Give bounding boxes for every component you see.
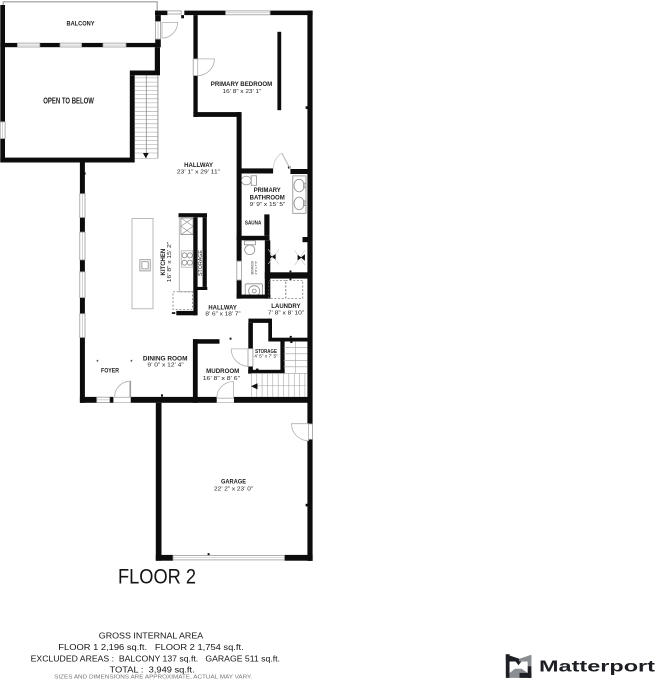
svg-text:GROSS INTERNAL AREA: GROSS INTERNAL AREA (99, 630, 204, 640)
svg-text:9’ 9” x 15’ 5”: 9’ 9” x 15’ 5” (250, 202, 286, 208)
svg-text:HALLWAY: HALLWAY (208, 304, 237, 311)
svg-text:BATHROOM: BATHROOM (250, 194, 285, 201)
svg-text:SAUNA: SAUNA (245, 220, 262, 226)
svg-text:8’ 6” x 18’ 7”: 8’ 6” x 18’ 7” (205, 312, 240, 318)
svg-text:LAUNDRY: LAUNDRY (271, 303, 301, 310)
svg-text:PRIMARY: PRIMARY (254, 187, 281, 194)
svg-text:BALCONY: BALCONY (67, 21, 96, 28)
svg-text:16’ 8” x 23’ 1”: 16’ 8” x 23’ 1” (223, 89, 262, 95)
svg-text:4’ 8” x 7’ 5”: 4’ 8” x 7’ 5” (254, 261, 258, 275)
svg-text:4’ 5” x 7’ 5”: 4’ 5” x 7’ 5” (254, 354, 278, 359)
svg-text:KITCHEN: KITCHEN (160, 248, 167, 275)
svg-text:MUDROOM: MUDROOM (206, 368, 239, 375)
svg-text:OPEN TO BELOW: OPEN TO BELOW (43, 97, 94, 106)
svg-text:EXCLUDED AREAS : BALCONY 137: EXCLUDED AREAS : BALCONY 137 sq.ft. GARA… (31, 653, 280, 663)
svg-text:FLOOR 2: FLOOR 2 (118, 566, 196, 589)
svg-text:GARAGE: GARAGE (221, 478, 247, 485)
svg-text:HALLWAY: HALLWAY (184, 162, 214, 169)
svg-text:16’ 8” x 15’ 2”: 16’ 8” x 15’ 2” (167, 242, 173, 282)
svg-text:9’ 0” x 12’ 4”: 9’ 0” x 12’ 4” (147, 363, 183, 369)
svg-text:23’ 1” x 29’ 11”: 23’ 1” x 29’ 11” (177, 170, 220, 176)
svg-text:7’ 8” x 8’ 10”: 7’ 8” x 8’ 10” (268, 310, 304, 316)
svg-text:SIZES AND DIMENSIONS ARE APPRO: SIZES AND DIMENSIONS ARE APPROXIMATE, AC… (54, 674, 253, 679)
svg-text:PRIMARY BEDROOM: PRIMARY BEDROOM (211, 81, 273, 88)
svg-text:FLOOR 1 2,196 sq.ft. FLOOR 2: FLOOR 1 2,196 sq.ft. FLOOR 2 1,754 sq.ft… (58, 642, 243, 652)
svg-text:22’ 2” x 23’ 0”: 22’ 2” x 23’ 0” (214, 486, 253, 492)
svg-text:Matterport: Matterport (539, 659, 656, 676)
svg-text:TOTAL : 3,949 sq.ft.: TOTAL : 3,949 sq.ft. (110, 664, 195, 674)
svg-text:DINING ROOM: DINING ROOM (143, 356, 188, 363)
svg-text:16’ 8” x 8’ 6”: 16’ 8” x 8’ 6” (203, 376, 240, 382)
svg-text:STORAGE: STORAGE (198, 249, 204, 276)
svg-text:FOYER: FOYER (101, 369, 120, 375)
